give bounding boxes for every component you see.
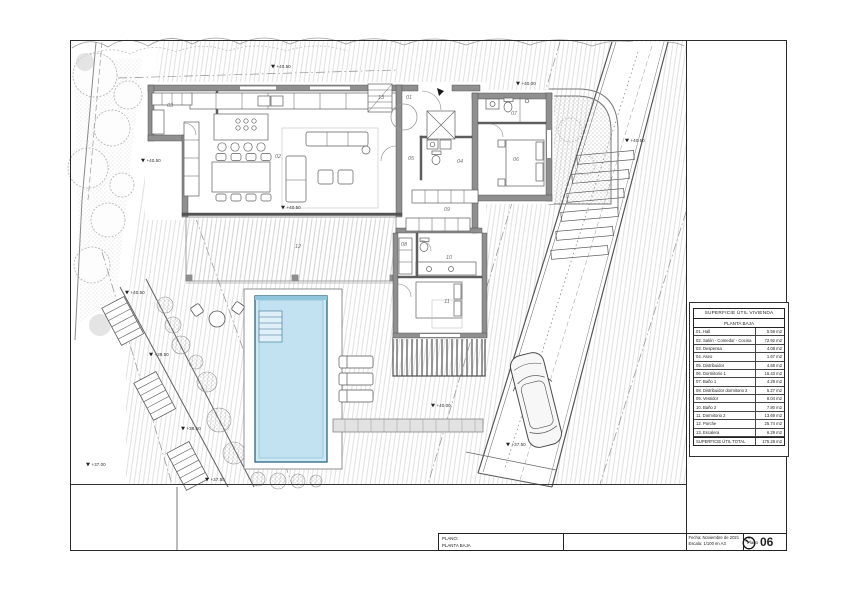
area-table-title: SUPERFICIE ÚTIL VIVIENDA xyxy=(694,309,784,319)
title-block: PLANO: PLANTA BAJA Fecha: Noviembre de 2… xyxy=(438,533,787,551)
room-label-09: 09 xyxy=(444,207,450,213)
svg-text:+39.50: +39.50 xyxy=(155,352,170,357)
fecha: Fecha: Noviembre de 2021 xyxy=(689,535,742,541)
title-block-empty xyxy=(564,534,686,550)
room-area: 6.29 m2 xyxy=(755,429,784,436)
garden-table xyxy=(209,311,225,327)
svg-text:+40.50: +40.50 xyxy=(631,138,646,143)
room-name: 01. Hall xyxy=(694,328,755,335)
area-table-row: 01. Hall 5.59 m2 xyxy=(694,328,784,336)
title-block-plano: PLANO: PLANTA BAJA xyxy=(439,534,564,550)
area-table-row: 07. Baño 1 4.29 m2 xyxy=(694,378,784,386)
drawing-sheet: 01020304050607080910111213 +40.50+40.00+… xyxy=(0,0,841,595)
room-label-12: 12 xyxy=(295,244,301,250)
plano-value: PLANTA BAJA xyxy=(442,542,560,549)
area-table-row: 08. Distribuidor dormitorio 2 5.27 m2 xyxy=(694,387,784,395)
room-area: 15.43 m2 xyxy=(755,370,784,377)
pool-area xyxy=(244,289,342,469)
room-label-02: 02 xyxy=(275,154,281,160)
svg-text:+40.50: +40.50 xyxy=(131,290,146,295)
room-name: 07. Baño 1 xyxy=(694,378,755,385)
area-table-row: 02. Salón - Comedor - Cocina 72.92 m2 xyxy=(694,336,784,344)
title-block-meta: Fecha: Noviembre de 2021 Escala: 1/100 e… xyxy=(687,534,745,550)
kitchen-sink xyxy=(258,96,270,106)
sheet-number: 06 xyxy=(760,535,773,549)
room-name: 08. Distribuidor dormitorio 2 xyxy=(694,387,755,394)
room-name: 03. Despensa xyxy=(694,345,755,352)
room-area: 5.27 m2 xyxy=(755,387,784,394)
room-area: 4.68 m2 xyxy=(755,362,784,369)
room-label-07: 07 xyxy=(511,111,518,117)
area-table-row: 12. Porche 25.74 m2 xyxy=(694,420,784,428)
room-name: 02. Salón - Comedor - Cocina xyxy=(694,336,755,343)
room-area: 7.80 m2 xyxy=(755,403,784,410)
room-label-13: 13 xyxy=(378,95,385,101)
sheet-label: Plano xyxy=(747,540,758,545)
room-name: 09. Vestidor xyxy=(694,395,755,402)
escala: Escala: 1/100 en A3 xyxy=(689,541,742,547)
pool-steps xyxy=(259,311,282,342)
room-area: 4.08 m2 xyxy=(755,345,784,352)
room-label-10: 10 xyxy=(446,255,453,261)
tree-shadow xyxy=(76,53,94,71)
svg-text:+38.50: +38.50 xyxy=(187,426,202,431)
room-label-01: 01 xyxy=(406,95,412,101)
room-label-06: 06 xyxy=(513,157,520,163)
room-name: 10. Baño 2 xyxy=(694,403,755,410)
room-area: 4.29 m2 xyxy=(755,378,784,385)
porch xyxy=(186,217,396,283)
room-area: 8.04 m2 xyxy=(755,395,784,402)
area-table-frame: SUPERFICIE ÚTIL VIVIENDA PLANTA BAJA 01.… xyxy=(689,302,789,457)
toilet xyxy=(420,243,428,252)
site-plan: 01020304050607080910111213 +40.50+40.00+… xyxy=(0,0,841,595)
area-table-row: 09. Vestidor 8.04 m2 xyxy=(694,395,784,403)
area-table-total: SUPERFICIE ÚTIL TOTAL 175.28 m2 xyxy=(694,437,784,445)
area-table-row: 13. Escalera 6.29 m2 xyxy=(694,429,784,437)
room-name: 05. Distribuidor xyxy=(694,362,755,369)
room-area: 5.59 m2 xyxy=(755,328,784,335)
area-table: SUPERFICIE ÚTIL VIVIENDA PLANTA BAJA 01.… xyxy=(693,308,785,446)
area-table-subtitle: PLANTA BAJA xyxy=(694,319,784,328)
room-name: 11. Dormitorio 2 xyxy=(694,412,755,419)
elevation-mark: +37.00 xyxy=(86,462,106,467)
room-area: 25.74 m2 xyxy=(755,420,784,427)
room-label-08: 08 xyxy=(401,242,408,248)
area-table-row: 06. Dormitorio 1 15.43 m2 xyxy=(694,370,784,378)
svg-text:+37.00: +37.00 xyxy=(92,462,107,467)
room-label-11: 11 xyxy=(444,299,450,305)
room-name: 13. Escalera xyxy=(694,429,755,436)
area-table-row: 05. Distribuidor 4.68 m2 xyxy=(694,362,784,370)
svg-text:+40.50: +40.50 xyxy=(147,158,162,163)
total-value: 175.28 m2 xyxy=(755,438,784,445)
area-table-row: 03. Despensa 4.08 m2 xyxy=(694,345,784,353)
room-name: 06. Dormitorio 1 xyxy=(694,370,755,377)
dining-table xyxy=(212,162,270,192)
pergola-deck xyxy=(393,338,485,376)
room-label-03: 03 xyxy=(167,103,174,109)
area-table-row: 04. Aseo 1.67 m2 xyxy=(694,353,784,361)
svg-text:+40.00: +40.00 xyxy=(522,81,537,86)
room-area: 1.67 m2 xyxy=(755,353,784,360)
svg-text:+40.00: +40.00 xyxy=(437,403,452,408)
total-label: SUPERFICIE ÚTIL TOTAL xyxy=(694,438,755,445)
svg-text:+37.50: +37.50 xyxy=(512,442,527,447)
plano-label: PLANO: xyxy=(442,535,560,542)
area-table-row: 11. Dormitorio 2 13.69 m2 xyxy=(694,412,784,420)
room-label-05: 05 xyxy=(408,156,415,162)
sun-loungers xyxy=(339,356,373,402)
toilet xyxy=(432,156,440,165)
svg-text:+40.50: +40.50 xyxy=(277,64,292,69)
kitchen-island xyxy=(214,114,268,140)
room-area: 72.92 m2 xyxy=(755,336,784,343)
room-name: 12. Porche xyxy=(694,420,755,427)
svg-text:+37.50: +37.50 xyxy=(211,477,226,482)
sofa xyxy=(306,132,368,146)
area-table-row: 10. Baño 2 7.80 m2 xyxy=(694,403,784,411)
room-label-04: 04 xyxy=(457,159,463,165)
room-name: 04. Aseo xyxy=(694,353,755,360)
title-block-number: Plano 06 xyxy=(744,534,786,550)
svg-text:+40.50: +40.50 xyxy=(287,205,302,210)
room-area: 13.69 m2 xyxy=(755,412,784,419)
